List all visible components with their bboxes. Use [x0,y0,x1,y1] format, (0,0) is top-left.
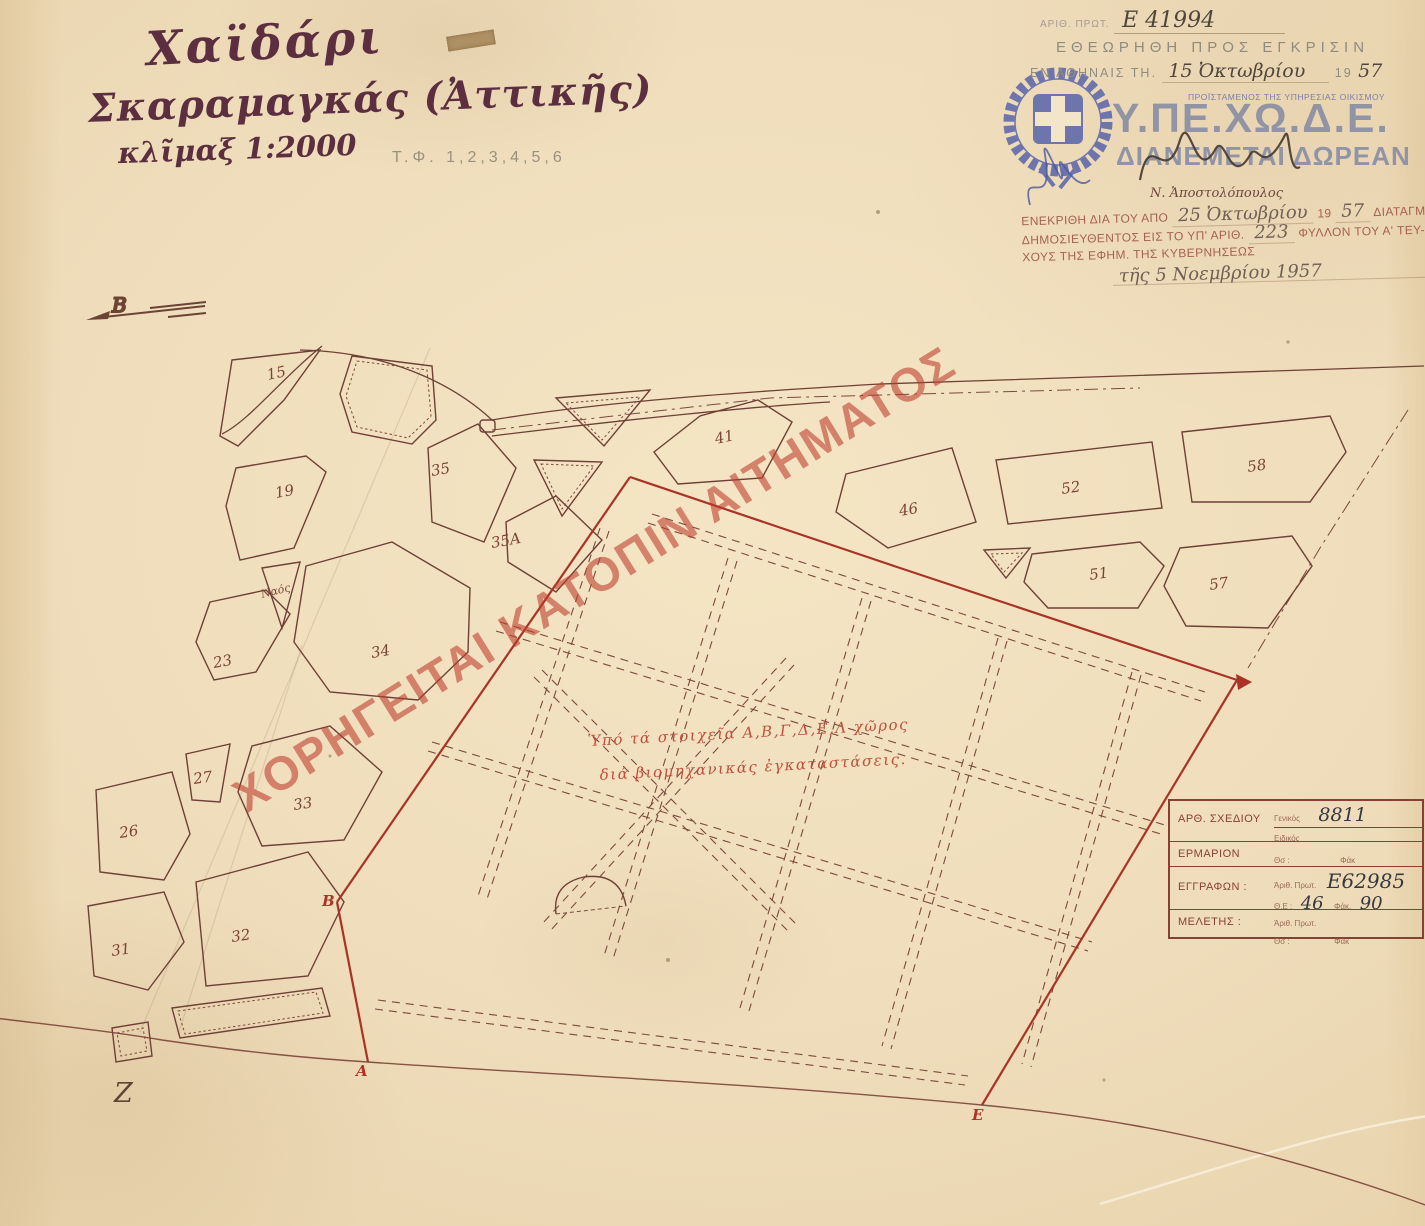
zone-note-line2: διά βιομηχανικάς ἐγκαταστάσεις. [599,750,907,784]
vertex-a-label: Α [354,1062,368,1080]
block-34-number: 34 [370,641,392,662]
block-26 [96,772,190,880]
block-23 [196,590,290,680]
block-23-number: 23 [211,651,234,672]
block-46-number: 46 [897,499,920,520]
block-58-number: 58 [1246,455,1267,475]
signer-name: Ν. Ἀποστολόπουλος [1150,186,1283,201]
block-27-number: 27 [191,767,214,788]
block-19-number: 19 [274,481,296,502]
north-arrow: Β [86,293,206,320]
block-35-number: 35 [430,459,452,480]
signature-left [1028,148,1090,205]
block-57-number: 57 [1208,573,1230,594]
review-year-prefix: 19 [1335,66,1353,80]
block-32-number: 32 [230,925,251,945]
block-31 [88,892,184,990]
reviewed-stamp: ΕΘΕΩΡΗΘΗ ΠΡΟΣ ΕΓΚΡΙΣΙΝ [1056,39,1369,56]
decree-line2-suffix: ΦΥΛΛΟΝ ΤΟΥ Α' ΤΕΥ- [1298,223,1425,240]
review-place-label: ΕΝ ΑΘΗΝΑΙΣ ΤΗ. [1030,66,1157,80]
church-label: Ναός [259,581,293,601]
block-51-number: 51 [1088,563,1109,583]
north-arrow-head [86,311,110,320]
map-sheet: Χαϊδάρι Σκαραμαγκάς (Ἀττικῆς) κλῖμαξ 1:2… [0,0,1425,1226]
protocol-number-label: ΑΡΙΘ. ΠΡΩΤ. [1040,19,1110,30]
garden-semicircle [556,876,626,914]
tree-triangle-1 [556,390,650,446]
block-35a-number: 35Α [490,529,523,552]
zone-note-line1: Ὑπό τά στοιχεῖα Α,Β,Γ,Δ,Ε,Λ χῶρος [587,715,909,750]
block-32 [196,852,344,986]
block-19 [226,456,326,560]
decree-year-handwritten: 57 [1335,200,1370,223]
sheet-numbers: Τ.Φ. 1,2,3,4,5,6 [392,149,566,167]
block-numbers: 15 19 35 35Α 41 46 52 58 51 57 23 34 26 … [110,362,1267,960]
tree-strip [172,988,330,1038]
block-52-number: 52 [1060,477,1081,497]
protocol-number: Ε 41994 [1114,8,1285,34]
block-41-number: 41 [712,426,735,448]
review-date-handwritten: 15 Ὀκτωβρίου [1162,60,1329,83]
decree-line1-suffix: ΔΙΑΤΑΓΜΑΤΟΣ [1373,203,1425,219]
protocol-row: ΑΡΙΘ. ΠΡΩΤ. Ε 41994 [1040,8,1285,33]
block-46 [836,448,976,548]
signatures [1000,95,1330,225]
north-label: Β [111,293,127,317]
block-57 [1164,536,1312,628]
vertex-e-label: Ε [971,1106,984,1124]
block-35 [428,424,516,542]
tree-square [112,1022,152,1062]
coastline [0,1018,1425,1206]
block-26-number: 26 [117,821,140,842]
boundary-b-a [337,902,368,1062]
industrial-zone-note: Ὑπό τά στοιχεῖα Α,Β,Γ,Δ,Ε,Λ χῶρος διά βι… [587,715,909,784]
signature-main [1140,133,1300,180]
vertex-b-label: Β [321,892,335,910]
boundary-d-e [982,680,1237,1105]
block-31-number: 31 [110,939,131,959]
vertex-delta-marker [1236,674,1252,690]
review-year-handwritten: 57 [1358,60,1382,82]
industrial-street-grid [375,514,1205,1085]
z-survey-mark: Ζ [114,1078,133,1109]
block-33-number: 33 [292,793,313,813]
green-areas [112,356,1030,1062]
review-date-row: ΕΝ ΑΘΗΝΑΙΣ ΤΗ. 15 Ὀκτωβρίου 19 57 [1030,60,1382,82]
